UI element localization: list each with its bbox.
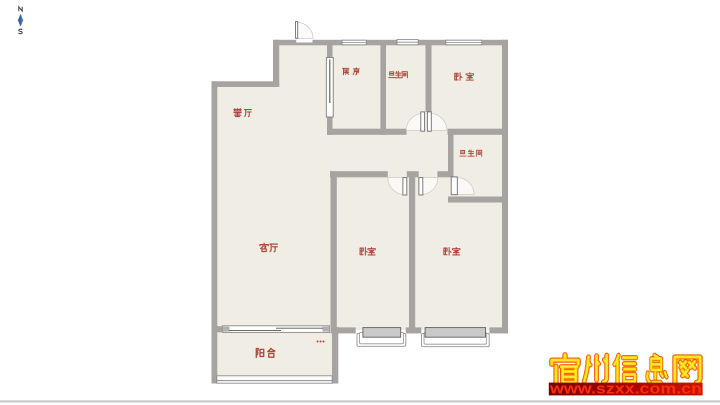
svg-text:www.szxx.com.cn: www.szxx.com.cn xyxy=(549,382,702,398)
